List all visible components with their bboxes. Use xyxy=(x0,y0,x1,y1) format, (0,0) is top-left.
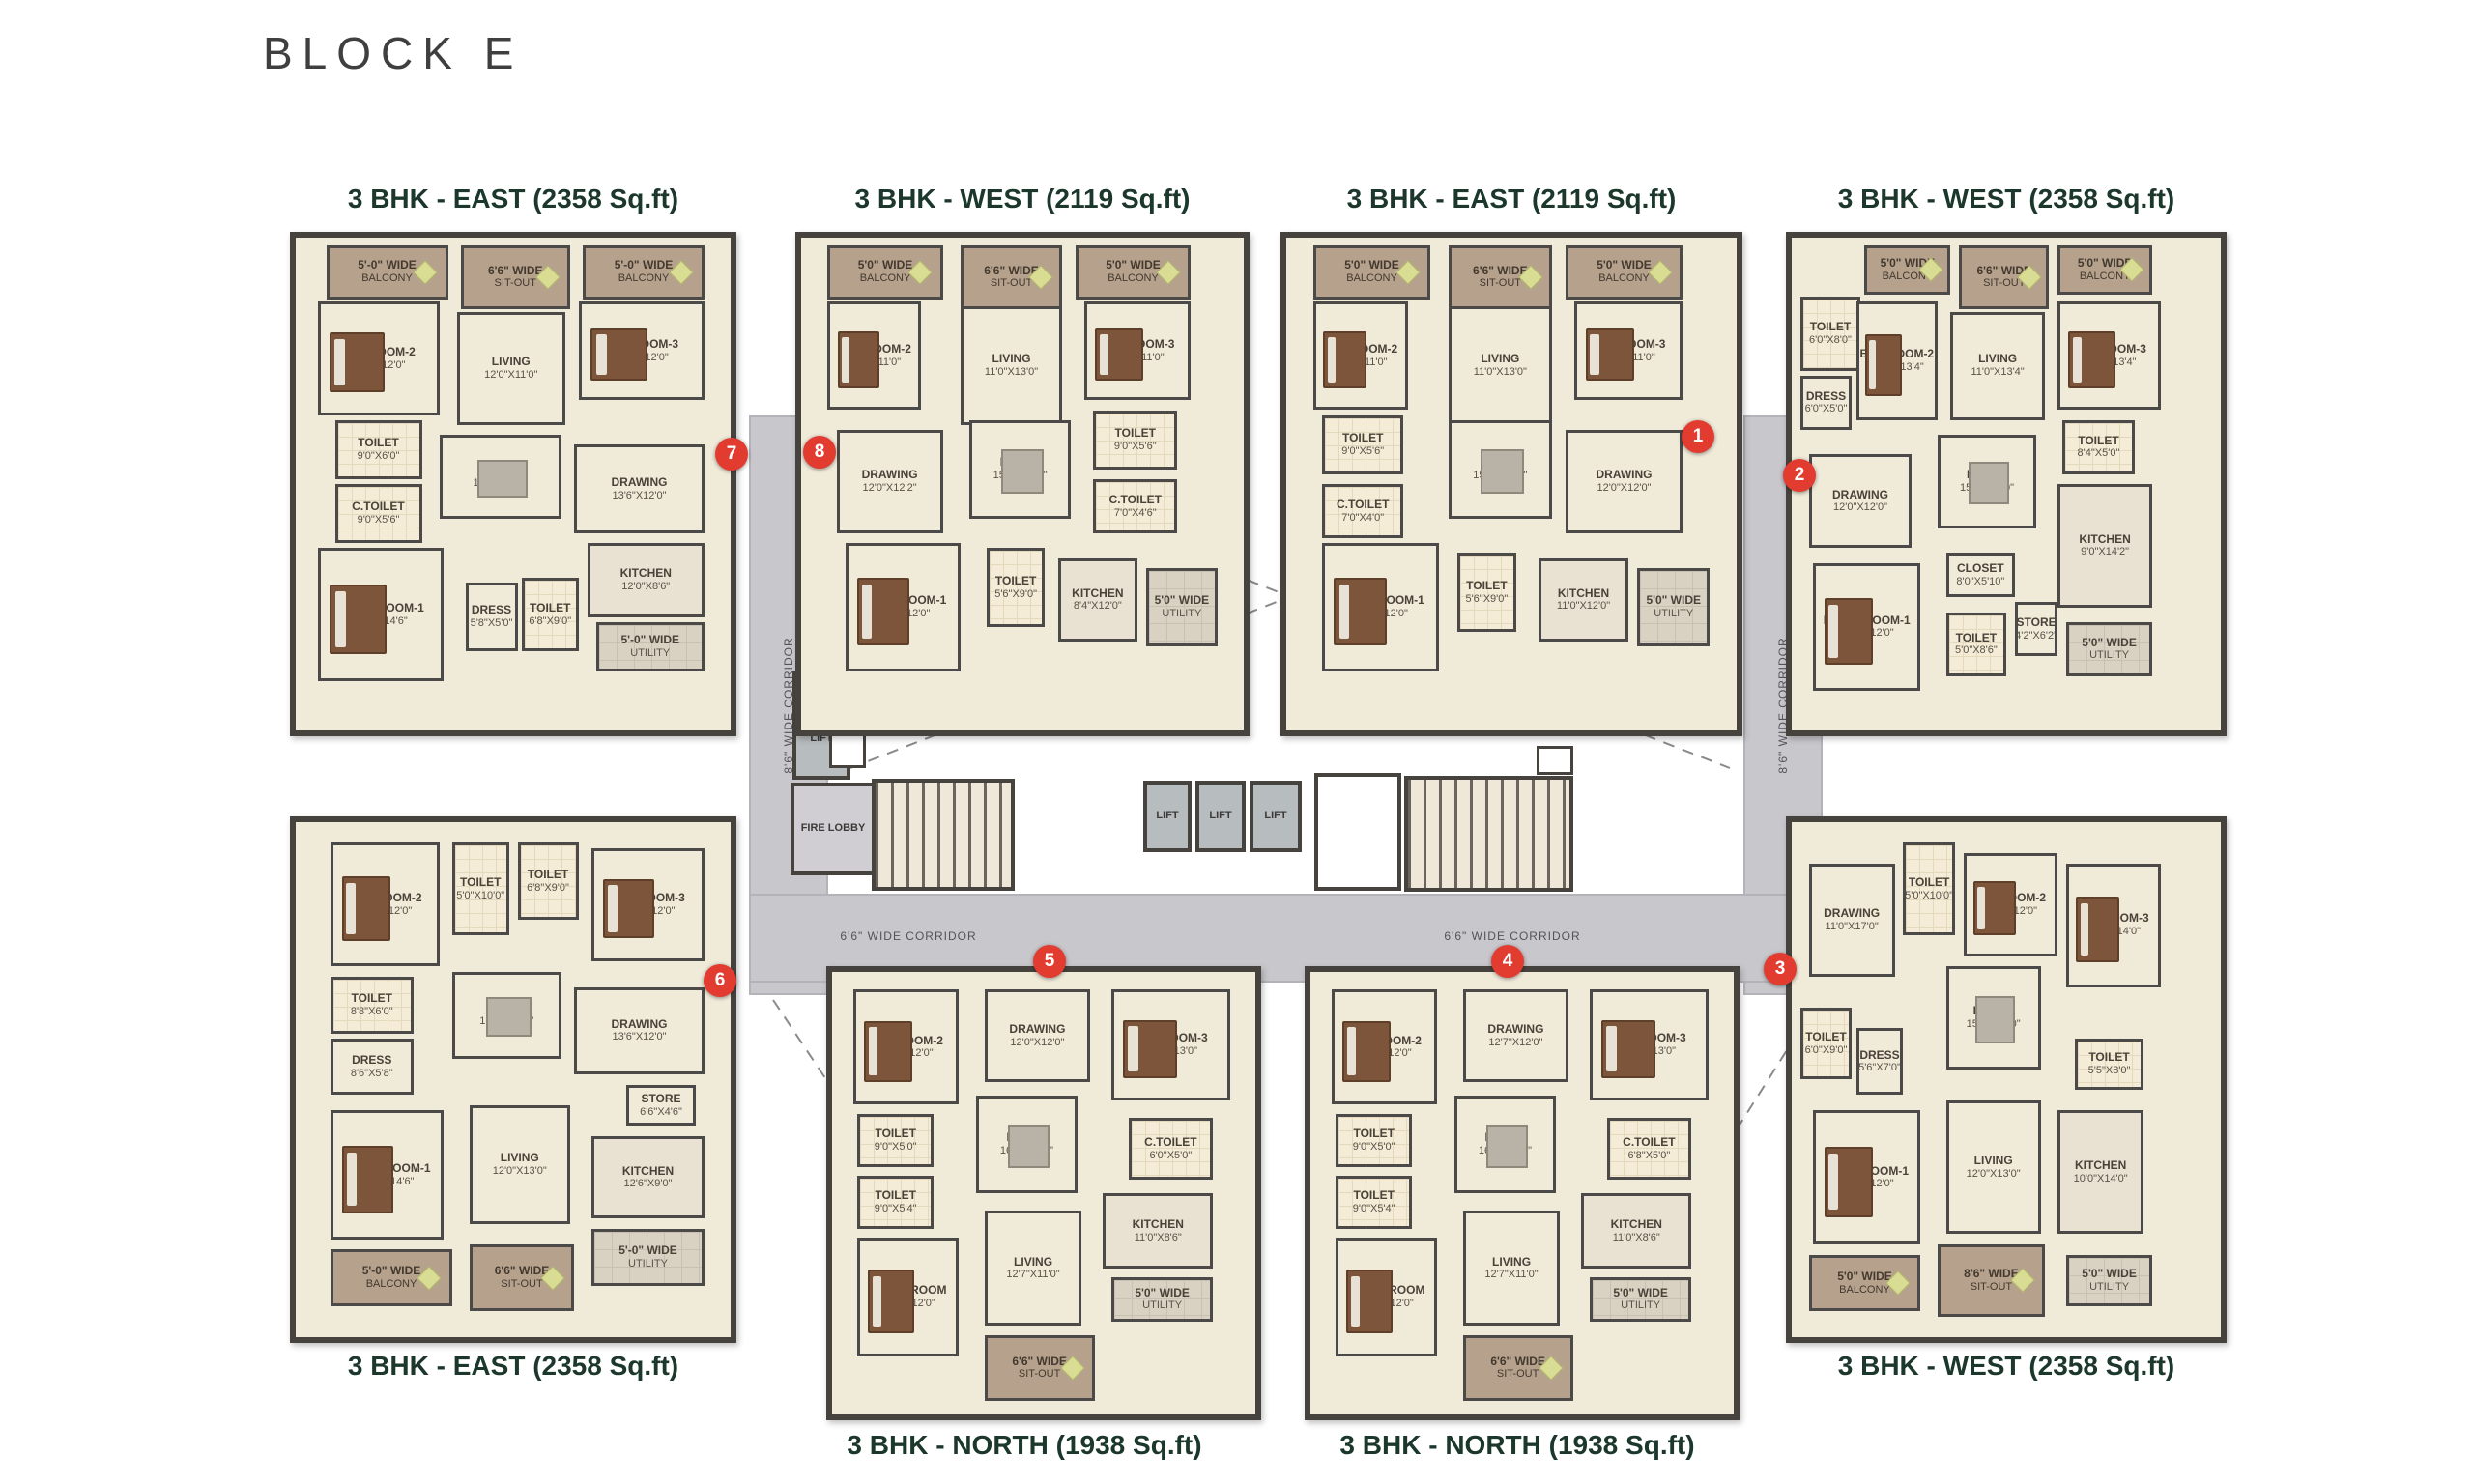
room-name: 5'-0" WIDE xyxy=(620,634,679,647)
unit-4-room-toilet: TOILET9'0"X5'0" xyxy=(1336,1114,1412,1167)
unit-7: 5'-0" WIDEBALCONY6'6" WIDESIT-OUT5'-0" W… xyxy=(290,232,736,736)
unit-8-room-sit-out: 6'6" WIDESIT-OUT xyxy=(961,245,1062,309)
unit-8-room-toilet: TOILET9'0"X5'6" xyxy=(1093,411,1177,470)
unit-4-room-kitchen: KITCHEN11'0"X8'6" xyxy=(1581,1193,1691,1269)
room-dimension: 13'6"X12'0" xyxy=(612,1031,666,1043)
lift-label: LIFT xyxy=(1209,810,1231,822)
unit-3-room-drawing: DRAWING11'0"X17'0" xyxy=(1809,864,1895,977)
room-dimension: 12'7"X11'0" xyxy=(1484,1269,1538,1281)
stair-3 xyxy=(872,779,1015,891)
room-name: TOILET xyxy=(1956,632,1997,645)
stair-8 xyxy=(1404,776,1573,892)
dining-table-icon xyxy=(1969,462,2009,504)
unit-marker-2: 2 xyxy=(1783,459,1816,492)
unit-8-room-bed-room-3: BED ROOM-313'0"X11'0" xyxy=(1084,301,1191,400)
unit-3-room-bedroom-3: BEDROOM-310'0"X14'0" xyxy=(2066,864,2161,987)
unit-1-room-bed-room-2: BED ROOM-212'0"X11'0" xyxy=(1313,301,1408,410)
unit-3-room-bedroom-2: BEDROOM-211'0"X12'0" xyxy=(1964,853,2058,956)
unit-4-room-bed-room-2: BED ROOM-213'0"X12'0" xyxy=(1332,989,1438,1104)
room-dimension: 12'0"X13'0" xyxy=(1967,1168,2021,1181)
unit-5-room-toilet: TOILET9'0"X5'4" xyxy=(857,1176,934,1229)
lift-label: LIFT xyxy=(1156,810,1178,822)
unit-3-room-toilet: TOILET5'0"X10'0" xyxy=(1903,842,1954,935)
room-name: C.TOILET xyxy=(1144,1136,1196,1150)
room-name: DRAWING xyxy=(612,476,668,490)
room-name: TOILET xyxy=(528,869,568,882)
unit-1-room-living: LIVING11'0"X13'0" xyxy=(1449,306,1552,424)
unit-6-room-drawing: DRAWING13'6"X12'0" xyxy=(574,987,705,1075)
bed-icon xyxy=(857,578,909,645)
unit-2-room-balcony: 5'0" WIDEBALCONY xyxy=(1864,245,1950,295)
bed-icon xyxy=(1334,578,1387,645)
unit-5-room-bed-room-3: BED ROOM-311'0"X13'0" xyxy=(1111,989,1230,1100)
lift: LIFT xyxy=(1195,781,1246,852)
room-name: TOILET xyxy=(995,575,1036,588)
room-dimension: SIT-OUT xyxy=(1497,1368,1539,1381)
unit-3-room-utility: 5'0" WIDEUTILITY xyxy=(2066,1255,2152,1306)
unit-6-room-bed-room-3: BED ROOM-312'6"X12'0" xyxy=(591,848,705,961)
room-name: 6'6" WIDE xyxy=(1490,1356,1545,1369)
bed-icon xyxy=(590,328,647,381)
room-name: LIVING xyxy=(1492,1256,1531,1270)
room-dimension: 12'0"X13'0" xyxy=(493,1165,547,1178)
bed-icon xyxy=(1825,598,1873,666)
unit-2-title: 3 BHK - WEST (2358 Sq.ft) xyxy=(1838,184,2174,214)
room-name: DRAWING xyxy=(1824,907,1880,921)
unit-2-room-bed-room-2: BED ROOM-210'0"X13'4" xyxy=(1856,301,1938,419)
unit-1-room-toilet: TOILET9'0"X5'6" xyxy=(1322,415,1403,474)
unit-4-room-utility: 5'0" WIDEUTILITY xyxy=(1590,1277,1691,1322)
room-dimension: 9'0"X5'6" xyxy=(358,514,400,527)
unit-5: BED ROOM-213'0"X12'0"DRAWING12'0"X12'0"B… xyxy=(826,966,1261,1420)
unit-6-room-sit-out: 6'6" WIDESIT-OUT xyxy=(470,1244,574,1311)
unit-4-room-c-toilet: C.TOILET6'8"X5'0" xyxy=(1607,1118,1692,1180)
room-name: DRAWING xyxy=(862,469,918,482)
corridor-center-label-2: 6'6" WIDE CORRIDOR xyxy=(1444,929,1580,943)
unit-5-room-utility: 5'0" WIDEUTILITY xyxy=(1111,1277,1213,1322)
unit-1-room-dining: DINING15'0"X12'0" xyxy=(1449,420,1552,519)
room-dimension: 9'0"X14'2" xyxy=(2081,546,2129,558)
room-dimension: SIT-OUT xyxy=(1971,1281,2012,1294)
unit-4-room-bed-room-3: BED ROOM-311'3"X13'0" xyxy=(1590,989,1709,1100)
unit-7-room-kitchen: KITCHEN12'0"X8'6" xyxy=(588,543,705,617)
room-name: KITCHEN xyxy=(620,567,672,581)
unit-2-room-kitchen: KITCHEN9'0"X14'2" xyxy=(2057,484,2152,608)
shaft-9 xyxy=(1537,746,1573,775)
room-name: C.TOILET xyxy=(1109,494,1162,507)
unit-6-room-toilet: TOILET8'8"X6'0" xyxy=(331,977,414,1034)
bed-icon xyxy=(838,331,880,388)
room-name: C.TOILET xyxy=(352,500,404,514)
room-dimension: 5'0"X10'0" xyxy=(456,890,504,902)
room-name: LIVING xyxy=(1974,1155,2013,1168)
unit-1-room-kitchen: KITCHEN11'0"X12'0" xyxy=(1539,558,1628,642)
room-dimension: 12'7"X12'0" xyxy=(1488,1037,1542,1049)
room-name: 5'0" WIDE xyxy=(2082,637,2137,650)
room-name: LIVING xyxy=(492,356,531,369)
unit-3-room-kitchen: KITCHEN10'0"X14'0" xyxy=(2057,1110,2143,1234)
unit-2-room-bed-room-3: BED ROOM-310'0"X13'4" xyxy=(2057,301,2161,410)
unit-8-room-drawing: DRAWING12'0"X12'2" xyxy=(837,430,943,533)
unit-marker-3: 3 xyxy=(1764,953,1797,985)
unit-6-room-toilet: TOILET6'8"X9'0" xyxy=(518,842,579,920)
room-name: 5'-0" WIDE xyxy=(362,1265,421,1278)
room-dimension: SIT-OUT xyxy=(501,1278,542,1291)
room-dimension: 6'8"X9'0" xyxy=(529,615,571,628)
unit-2-room-closet: CLOSET8'0"X5'10" xyxy=(1946,553,2015,597)
room-name: CLOSET xyxy=(1957,562,2004,576)
unit-6-room-dress: DRESS8'6"X5'8" xyxy=(331,1039,414,1096)
unit-8-room-balcony: 5'0" WIDEBALCONY xyxy=(827,245,942,300)
room-dimension: BALCONY xyxy=(1598,272,1650,285)
unit-7-room-c-toilet: C.TOILET9'0"X5'6" xyxy=(335,484,422,543)
unit-2-room-toilet: TOILET6'0"X8'0" xyxy=(1800,297,1860,371)
room-name: 5'0" WIDE xyxy=(1837,1270,1892,1284)
room-name: DRAWING xyxy=(1487,1023,1543,1037)
unit-4-room-m-bed-room: M.BED ROOM13'0"X12'0" xyxy=(1336,1238,1437,1357)
bed-icon xyxy=(603,879,654,939)
unit-3-room-dining: DINING15'8"X12'0" xyxy=(1946,966,2041,1070)
room-name: KITCHEN xyxy=(1611,1218,1662,1232)
floor-plan-canvas: BLOCK E 8'6" WIDE CORRIDOR8'6" WIDE CORR… xyxy=(0,0,2474,1484)
unit-3-room-m-bedroom-1: M.BEDROOM-115'8"X12'0" xyxy=(1813,1110,1920,1244)
room-dimension: 11'0"X17'0" xyxy=(1826,921,1879,933)
unit-4-room-sit-out: 6'6" WIDESIT-OUT xyxy=(1463,1335,1573,1402)
unit-5-room-dining: DINING16'0"X11'0" xyxy=(976,1096,1078,1193)
unit-3-room-dress: DRESS5'6"X7'0" xyxy=(1856,1028,1904,1095)
bed-icon xyxy=(1123,1020,1176,1078)
bed-icon xyxy=(2076,897,2118,961)
room-dimension: BALCONY xyxy=(1108,272,1159,285)
room-name: DRAWING xyxy=(612,1018,668,1032)
unit-marker-4: 4 xyxy=(1491,945,1524,978)
room-dimension: UTILITY xyxy=(2089,649,2129,662)
unit-6-room-balcony: 5'-0" WIDEBALCONY xyxy=(331,1249,452,1306)
room-name: DRESS xyxy=(352,1054,391,1068)
void-7 xyxy=(1314,773,1401,891)
block-title: BLOCK E xyxy=(263,27,523,79)
bed-icon xyxy=(1346,1270,1393,1332)
unit-8-room-kitchen: KITCHEN8'4"X12'0" xyxy=(1058,558,1137,642)
room-dimension: UTILITY xyxy=(1621,1299,1660,1312)
room-name: DRAWING xyxy=(1596,469,1652,482)
unit-7-room-bed-room-3: BED ROOM-312'6"X12'0" xyxy=(579,301,705,400)
room-dimension: 6'8"X5'0" xyxy=(1627,1150,1670,1162)
unit-marker-6: 6 xyxy=(704,964,736,997)
unit-7-title: 3 BHK - EAST (2358 Sq.ft) xyxy=(348,184,678,214)
room-name: 5'-0" WIDE xyxy=(618,1244,677,1258)
room-name: TOILET xyxy=(1909,876,1949,890)
room-name: TOILET xyxy=(1805,1031,1846,1044)
unit-5-room-toilet: TOILET9'0"X5'0" xyxy=(857,1114,934,1167)
unit-5-title: 3 BHK - NORTH (1938 Sq.ft) xyxy=(847,1430,1201,1461)
room-dimension: UTILITY xyxy=(2089,1281,2129,1294)
unit-7-room-m-bed-room-1: M.BED ROOM-113'0"X14'6" xyxy=(318,548,445,681)
unit-5-room-drawing: DRAWING12'0"X12'0" xyxy=(985,989,1091,1082)
unit-2-room-balcony: 5'0" WIDEBALCONY xyxy=(2057,245,2152,295)
room-dimension: 5'0"X10'0" xyxy=(1905,890,1953,902)
room-name: KITCHEN xyxy=(622,1165,674,1179)
room-dimension: 9'0"X6'0" xyxy=(358,450,400,463)
room-dimension: SIT-OUT xyxy=(495,277,536,290)
unit-8-room-living: LIVING11'0"X13'0" xyxy=(961,306,1062,424)
fire-lobby-label: FIRE LOBBY xyxy=(801,822,866,835)
room-name: DRESS xyxy=(1806,390,1846,404)
bed-icon xyxy=(342,876,391,941)
bed-icon xyxy=(864,1021,912,1082)
room-name: C.TOILET xyxy=(1337,499,1389,512)
room-dimension: 12'0"X8'6" xyxy=(621,581,670,593)
room-name: DRESS xyxy=(1859,1049,1899,1063)
bed-icon xyxy=(330,585,387,654)
dining-table-icon xyxy=(1481,449,1523,494)
unit-7-room-toilet: TOILET9'0"X6'0" xyxy=(335,420,422,479)
room-dimension: 8'4"X5'0" xyxy=(2078,447,2120,460)
unit-1-room-toilet: TOILET5'6"X9'0" xyxy=(1457,553,1516,632)
dining-table-icon xyxy=(1486,1125,1529,1169)
room-dimension: 8'4"X12'0" xyxy=(1074,600,1122,613)
unit-1-room-bed-room-3: BED ROOM-313'0"X11'0" xyxy=(1574,301,1683,400)
room-name: TOILET xyxy=(2088,1051,2129,1065)
unit-1-room-balcony: 5'0" WIDEBALCONY xyxy=(1313,245,1430,300)
room-dimension: 8'8"X6'0" xyxy=(351,1006,393,1018)
unit-2-room-store: STORE4'2"X6'2" xyxy=(2015,602,2057,656)
unit-2-room-drawing: DRAWING12'0"X12'0" xyxy=(1809,454,1913,548)
room-name: STORE xyxy=(641,1093,680,1106)
unit-5-room-m-bed-room: M.BED ROOM13'0"X12'0" xyxy=(857,1238,959,1357)
unit-8-room-utility: 5'0" WIDEUTILITY xyxy=(1146,568,1217,647)
room-dimension: SIT-OUT xyxy=(991,277,1032,290)
room-dimension: 11'0"X13'0" xyxy=(1474,366,1527,379)
unit-4: BED ROOM-213'0"X12'0"DRAWING12'7"X12'0"B… xyxy=(1305,966,1740,1420)
unit-5-room-c-toilet: C.TOILET6'0"X5'0" xyxy=(1129,1118,1214,1180)
room-name: KITCHEN xyxy=(2075,1159,2126,1173)
unit-1: 5'0" WIDEBALCONY6'6" WIDESIT-OUT5'0" WID… xyxy=(1280,232,1742,736)
room-dimension: 9'0"X5'4" xyxy=(875,1203,917,1215)
unit-6-room-store: STORE6'6"X4'6" xyxy=(626,1085,696,1127)
unit-2-room-dress: DRESS6'0"X5'0" xyxy=(1800,376,1852,430)
unit-7-room-drawing: DRAWING13'6"X12'0" xyxy=(574,444,705,533)
room-dimension: 9'0"X5'0" xyxy=(875,1141,917,1154)
dining-table-icon xyxy=(477,460,528,499)
unit-8-room-balcony: 5'0" WIDEBALCONY xyxy=(1076,245,1191,300)
dining-table-icon xyxy=(1008,1125,1050,1169)
unit-4-room-toilet: TOILET9'0"X5'4" xyxy=(1336,1176,1412,1229)
bed-icon xyxy=(1323,331,1366,388)
room-name: LIVING xyxy=(992,353,1031,366)
bed-icon xyxy=(1586,328,1635,381)
unit-1-room-c-toilet: C.TOILET7'0"X4'0" xyxy=(1322,484,1403,538)
room-name: TOILET xyxy=(460,876,501,890)
room-name: DRAWING xyxy=(1009,1023,1065,1037)
room-dimension: UTILITY xyxy=(1654,608,1693,620)
room-dimension: 11'0"X13'4" xyxy=(1971,366,2024,379)
unit-5-room-kitchen: KITCHEN11'0"X8'6" xyxy=(1103,1193,1213,1269)
room-dimension: BALCONY xyxy=(860,272,911,285)
unit-3-room-toilet: TOILET5'5"X8'0" xyxy=(2075,1039,2143,1090)
bed-icon xyxy=(342,1146,393,1213)
unit-marker-7: 7 xyxy=(715,438,748,471)
unit-7-room-dining: DINING16'7"X12'0" xyxy=(440,435,561,519)
unit-3-title: 3 BHK - WEST (2358 Sq.ft) xyxy=(1838,1351,2174,1382)
room-dimension: 12'0"X11'0" xyxy=(484,369,537,382)
room-dimension: 7'0"X4'0" xyxy=(1341,512,1384,525)
room-name: TOILET xyxy=(352,992,392,1006)
room-name: 5'0" WIDE xyxy=(1155,594,1210,608)
unit-5-room-sit-out: 6'6" WIDESIT-OUT xyxy=(985,1335,1095,1402)
room-dimension: UTILITY xyxy=(1162,608,1201,620)
unit-6-room-living: LIVING12'0"X13'0" xyxy=(470,1105,570,1224)
room-dimension: 7'0"X4'6" xyxy=(1114,507,1157,520)
room-dimension: 9'0"X5'6" xyxy=(1341,445,1384,458)
room-name: TOILET xyxy=(358,437,398,450)
unit-7-room-living: LIVING12'0"X11'0" xyxy=(457,312,566,425)
room-name: LIVING xyxy=(1481,353,1519,366)
unit-1-room-utility: 5'0" WIDEUTILITY xyxy=(1637,568,1710,647)
room-name: TOILET xyxy=(1353,1189,1394,1203)
room-dimension: UTILITY xyxy=(630,647,670,660)
room-dimension: BALCONY xyxy=(366,1278,417,1291)
unit-4-room-drawing: DRAWING12'7"X12'0" xyxy=(1463,989,1569,1082)
room-dimension: 13'6"X12'0" xyxy=(612,490,666,502)
unit-8-room-toilet: TOILET5'6"X9'0" xyxy=(987,548,1045,627)
unit-1-room-sit-out: 6'6" WIDESIT-OUT xyxy=(1449,245,1552,309)
room-dimension: UTILITY xyxy=(1142,1299,1182,1312)
room-name: 5'0" WIDE xyxy=(1646,594,1701,608)
room-dimension: BALCONY xyxy=(1346,272,1397,285)
unit-5-room-bed-room-2: BED ROOM-213'0"X12'0" xyxy=(853,989,960,1104)
room-dimension: 9'0"X5'0" xyxy=(1353,1141,1395,1154)
room-dimension: 6'0"X8'0" xyxy=(1809,334,1852,347)
unit-3-room-sit-out: 8'6" WIDESIT-OUT xyxy=(1938,1244,2045,1317)
bed-icon xyxy=(1825,1147,1873,1217)
room-name: STORE xyxy=(2017,616,2057,630)
room-name: 5'-0" WIDE xyxy=(358,259,417,272)
unit-2-room-toilet: TOILET5'0"X8'6" xyxy=(1946,613,2006,676)
room-name: C.TOILET xyxy=(1623,1136,1675,1150)
room-dimension: 6'8"X9'0" xyxy=(527,882,569,895)
room-dimension: BALCONY xyxy=(1839,1284,1890,1297)
unit-1-room-balcony: 5'0" WIDEBALCONY xyxy=(1566,245,1683,300)
room-dimension: 5'8"X5'0" xyxy=(471,617,513,630)
unit-2: 5'0" WIDEBALCONY6'6" WIDESIT-OUT5'0" WID… xyxy=(1786,232,2227,736)
room-name: LIVING xyxy=(501,1152,539,1165)
bed-icon xyxy=(1095,328,1143,381)
unit-7-room-balcony: 5'-0" WIDEBALCONY xyxy=(327,245,448,300)
dining-table-icon xyxy=(486,997,532,1037)
room-name: KITCHEN xyxy=(1133,1218,1184,1232)
room-dimension: 12'0"X12'0" xyxy=(1833,501,1887,514)
room-dimension: 12'0"X12'0" xyxy=(1597,482,1651,495)
room-dimension: 6'0"X9'0" xyxy=(1805,1044,1848,1057)
unit-1-room-drawing: DRAWING12'0"X12'0" xyxy=(1566,430,1683,533)
room-name: 5'0" WIDE xyxy=(1597,259,1652,272)
room-name: 5'-0" WIDE xyxy=(615,259,674,272)
unit-7-room-dress: DRESS5'8"X5'0" xyxy=(466,583,518,651)
bed-icon xyxy=(1973,881,2016,935)
fire-lobby: FIRE LOBBY xyxy=(791,783,876,875)
lift: LIFT xyxy=(1250,781,1302,852)
room-name: TOILET xyxy=(530,602,570,615)
room-name: 5'0" WIDE xyxy=(1344,259,1399,272)
unit-4-room-dining: DINING16'0"X11'0" xyxy=(1454,1096,1556,1193)
unit-6-title: 3 BHK - EAST (2358 Sq.ft) xyxy=(348,1351,678,1382)
unit-2-room-living: LIVING11'0"X13'4" xyxy=(1950,312,2045,420)
room-dimension: 5'6"X9'0" xyxy=(994,588,1037,601)
unit-2-room-dining: DINING15'4"X12'0" xyxy=(1938,435,2036,528)
room-dimension: BALCONY xyxy=(361,272,413,285)
room-name: KITCHEN xyxy=(1072,587,1123,601)
unit-1-title: 3 BHK - EAST (2119 Sq.ft) xyxy=(1347,184,1677,214)
unit-4-room-living: LIVING12'7"X11'0" xyxy=(1463,1211,1561,1326)
unit-6-room-dining: DINING16'7"X12'0" xyxy=(452,972,561,1060)
room-dimension: 11'0"X12'0" xyxy=(1557,600,1610,613)
room-dimension: SIT-OUT xyxy=(1019,1368,1060,1381)
room-dimension: 9'0"X5'6" xyxy=(1114,441,1157,453)
bed-icon xyxy=(330,332,385,392)
room-name: 5'0" WIDE xyxy=(1106,259,1161,272)
unit-2-room-toilet: TOILET8'4"X5'0" xyxy=(2062,420,2135,474)
unit-marker-5: 5 xyxy=(1033,945,1066,978)
room-name: KITCHEN xyxy=(2079,533,2130,547)
unit-4-title: 3 BHK - NORTH (1938 Sq.ft) xyxy=(1339,1430,1694,1461)
unit-8: 5'0" WIDEBALCONY6'6" WIDESIT-OUT5'0" WID… xyxy=(795,232,1250,736)
room-name: TOILET xyxy=(1466,580,1507,593)
bed-icon xyxy=(2068,331,2114,388)
bed-icon xyxy=(1342,1021,1391,1082)
unit-6-room-utility: 5'-0" WIDEUTILITY xyxy=(591,1229,705,1286)
bed-icon xyxy=(1601,1020,1654,1078)
unit-3-room-balcony: 5'0" WIDEBALCONY xyxy=(1809,1255,1920,1312)
unit-8-room-c-toilet: C.TOILET7'0"X4'6" xyxy=(1093,479,1177,533)
unit-7-room-utility: 5'-0" WIDEUTILITY xyxy=(596,622,705,671)
room-name: 6'6" WIDE xyxy=(488,265,543,278)
room-dimension: 11'0"X8'6" xyxy=(1613,1232,1660,1244)
room-dimension: 5'6"X7'0" xyxy=(1858,1062,1901,1074)
dining-table-icon xyxy=(1975,996,2015,1042)
room-dimension: 11'0"X13'0" xyxy=(985,366,1038,379)
unit-6-room-toilet: TOILET5'0"X10'0" xyxy=(452,842,509,935)
room-name: LIVING xyxy=(1014,1256,1052,1270)
room-name: 6'6" WIDE xyxy=(1012,1356,1067,1369)
unit-2-room-utility: 5'0" WIDEUTILITY xyxy=(2066,622,2152,676)
room-dimension: SIT-OUT xyxy=(1480,277,1521,290)
unit-6-room-bed-room-2: BED ROOM-213'0"X12'0" xyxy=(331,842,440,966)
unit-3: DRAWING11'0"X17'0"TOILET5'0"X10'0"BEDROO… xyxy=(1786,816,2227,1343)
room-dimension: 8'6"X5'8" xyxy=(351,1068,393,1080)
unit-marker-8: 8 xyxy=(803,436,836,469)
room-name: TOILET xyxy=(1342,432,1383,445)
room-dimension: 5'0"X8'6" xyxy=(1955,644,1998,657)
unit-7-room-sit-out: 6'6" WIDESIT-OUT xyxy=(461,245,570,309)
unit-6-room-kitchen: KITCHEN12'6"X9'0" xyxy=(591,1136,705,1218)
room-dimension: 6'0"X5'0" xyxy=(1149,1150,1192,1162)
room-dimension: 12'0"X12'2" xyxy=(863,482,917,495)
bed-icon xyxy=(868,1270,914,1332)
unit-7-room-balcony: 5'-0" WIDEBALCONY xyxy=(583,245,705,300)
room-dimension: 6'6"X4'6" xyxy=(640,1106,682,1119)
room-name: 5'0" WIDE xyxy=(858,259,913,272)
room-name: 5'0" WIDE xyxy=(2082,1268,2137,1281)
room-dimension: 9'0"X5'4" xyxy=(1353,1203,1395,1215)
room-name: TOILET xyxy=(2078,435,2118,448)
dining-table-icon xyxy=(1001,449,1044,494)
room-dimension: 12'7"X11'0" xyxy=(1006,1269,1059,1281)
room-dimension: 4'2"X6'2" xyxy=(2015,630,2057,642)
room-dimension: 12'0"X12'0" xyxy=(1010,1037,1064,1049)
unit-1-room-m-bed-room-1: M.BED ROOM-114'0"X12'0" xyxy=(1322,543,1439,671)
room-dimension: UTILITY xyxy=(628,1258,668,1270)
